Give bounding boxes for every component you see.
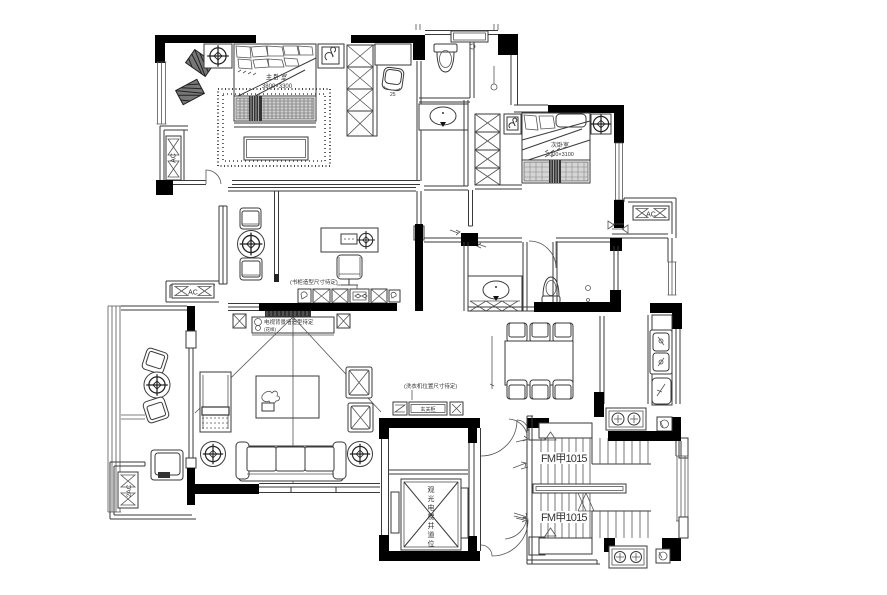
- svg-text:电: 电: [428, 503, 435, 512]
- svg-text:(书柜造型尺寸待定): (书柜造型尺寸待定): [290, 278, 338, 286]
- svg-text:观: 观: [428, 486, 435, 494]
- svg-text:3000×3100: 3000×3100: [546, 152, 574, 158]
- svg-text:AC: AC: [171, 153, 178, 163]
- svg-text:FM甲1015: FM甲1015: [541, 453, 587, 465]
- svg-text:光: 光: [428, 494, 435, 503]
- svg-text:AC: AC: [188, 290, 198, 297]
- svg-text:梯: 梯: [428, 512, 435, 521]
- svg-text:FM甲1015: FM甲1015: [541, 512, 587, 524]
- svg-text:25: 25: [390, 92, 396, 98]
- svg-text:次卧室: 次卧室: [551, 141, 569, 149]
- svg-text:电视背景墙造型待定: 电视背景墙造型待定: [264, 318, 314, 326]
- svg-text:位: 位: [428, 539, 435, 548]
- svg-text:玄关柜: 玄关柜: [420, 406, 435, 413]
- svg-text:道: 道: [428, 530, 435, 539]
- svg-text:2AC: 2AC: [126, 484, 133, 497]
- svg-text:AC: AC: [646, 212, 656, 219]
- svg-text:(洗衣机位置尺寸待定): (洗衣机位置尺寸待定): [404, 382, 457, 390]
- svg-text:井: 井: [428, 521, 435, 530]
- svg-text:(花样): (花样): [264, 326, 276, 333]
- svg-text:主卧室: 主卧室: [266, 72, 289, 81]
